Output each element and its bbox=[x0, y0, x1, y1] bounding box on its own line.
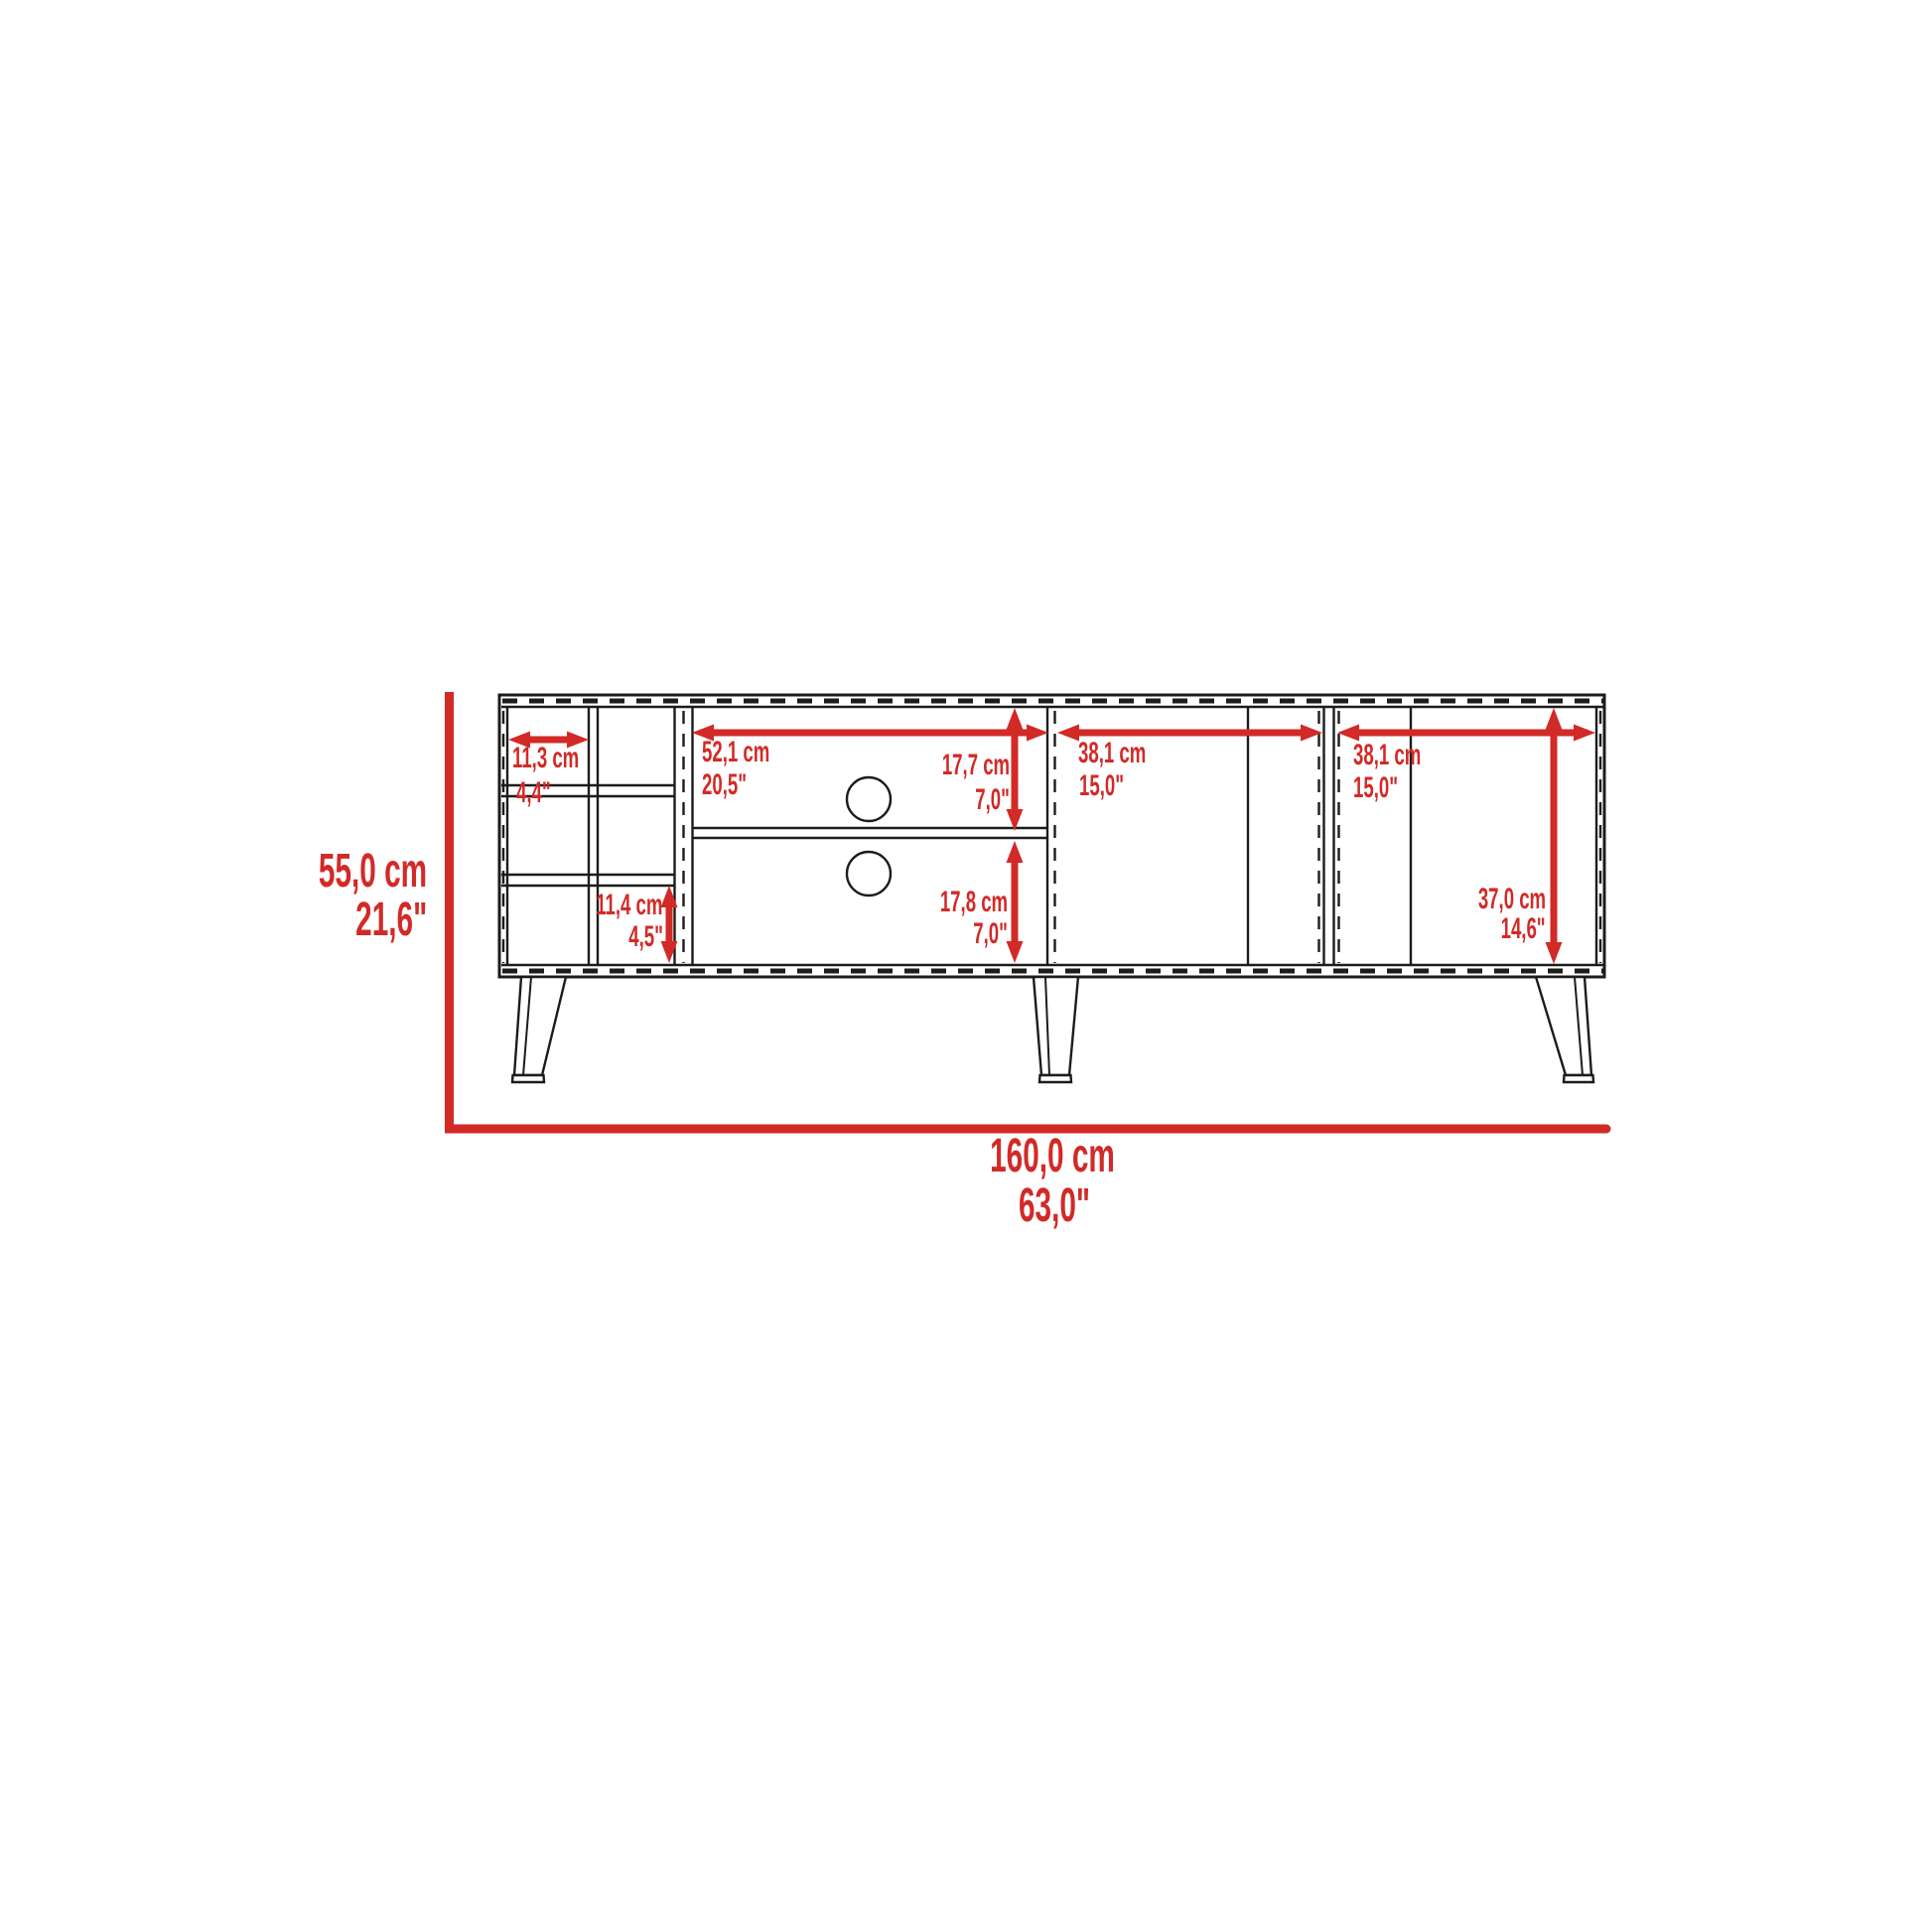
dim-left-door-width-in: 15,0" bbox=[1079, 771, 1124, 801]
dim-overall-width-in: 63,0" bbox=[1019, 1182, 1090, 1230]
dim-overall-width-cm: 160,0 cm bbox=[990, 1133, 1115, 1180]
cable-holes bbox=[847, 777, 891, 896]
dim-overall-height-cm: 55,0 cm bbox=[319, 848, 427, 896]
dim-media-width-in: 20,5" bbox=[702, 770, 747, 800]
dimension-diagram: 55,0 cm 21,6" 160,0 cm 63,0" 11,3 cm 4,4… bbox=[0, 0, 1932, 1932]
dim-right-door-width-cm: 38,1 cm bbox=[1353, 741, 1421, 770]
dim-door-interior-height-in: 14,6" bbox=[1501, 914, 1546, 944]
dim-cubby-height-cm: 11,4 cm bbox=[596, 891, 662, 920]
dim-right-door-width-in: 15,0" bbox=[1353, 773, 1398, 803]
dim-cubby-width-cm: 11,3 cm bbox=[512, 744, 579, 773]
dim-overall-height-in: 21,6" bbox=[355, 897, 427, 944]
dim-door-interior-height-cm: 37,0 cm bbox=[1478, 885, 1546, 914]
diagram-canvas bbox=[0, 0, 1932, 1932]
dimension-arrows bbox=[508, 708, 1595, 964]
dim-cubby-width-in: 4,4" bbox=[516, 778, 551, 808]
dim-upper-compartment-height-cm: 17,7 cm bbox=[942, 751, 1010, 780]
dim-lower-compartment-height-in: 7,0" bbox=[973, 919, 1008, 949]
dim-left-door-width-cm: 38,1 cm bbox=[1078, 739, 1146, 768]
dim-media-width-cm: 52,1 cm bbox=[702, 738, 769, 767]
dim-cubby-height-in: 4,5" bbox=[628, 922, 663, 952]
dim-upper-compartment-height-in: 7,0" bbox=[975, 785, 1010, 815]
tv-stand-outline bbox=[499, 695, 1604, 977]
legs bbox=[512, 977, 1593, 1082]
dim-lower-compartment-height-cm: 17,8 cm bbox=[940, 888, 1008, 917]
